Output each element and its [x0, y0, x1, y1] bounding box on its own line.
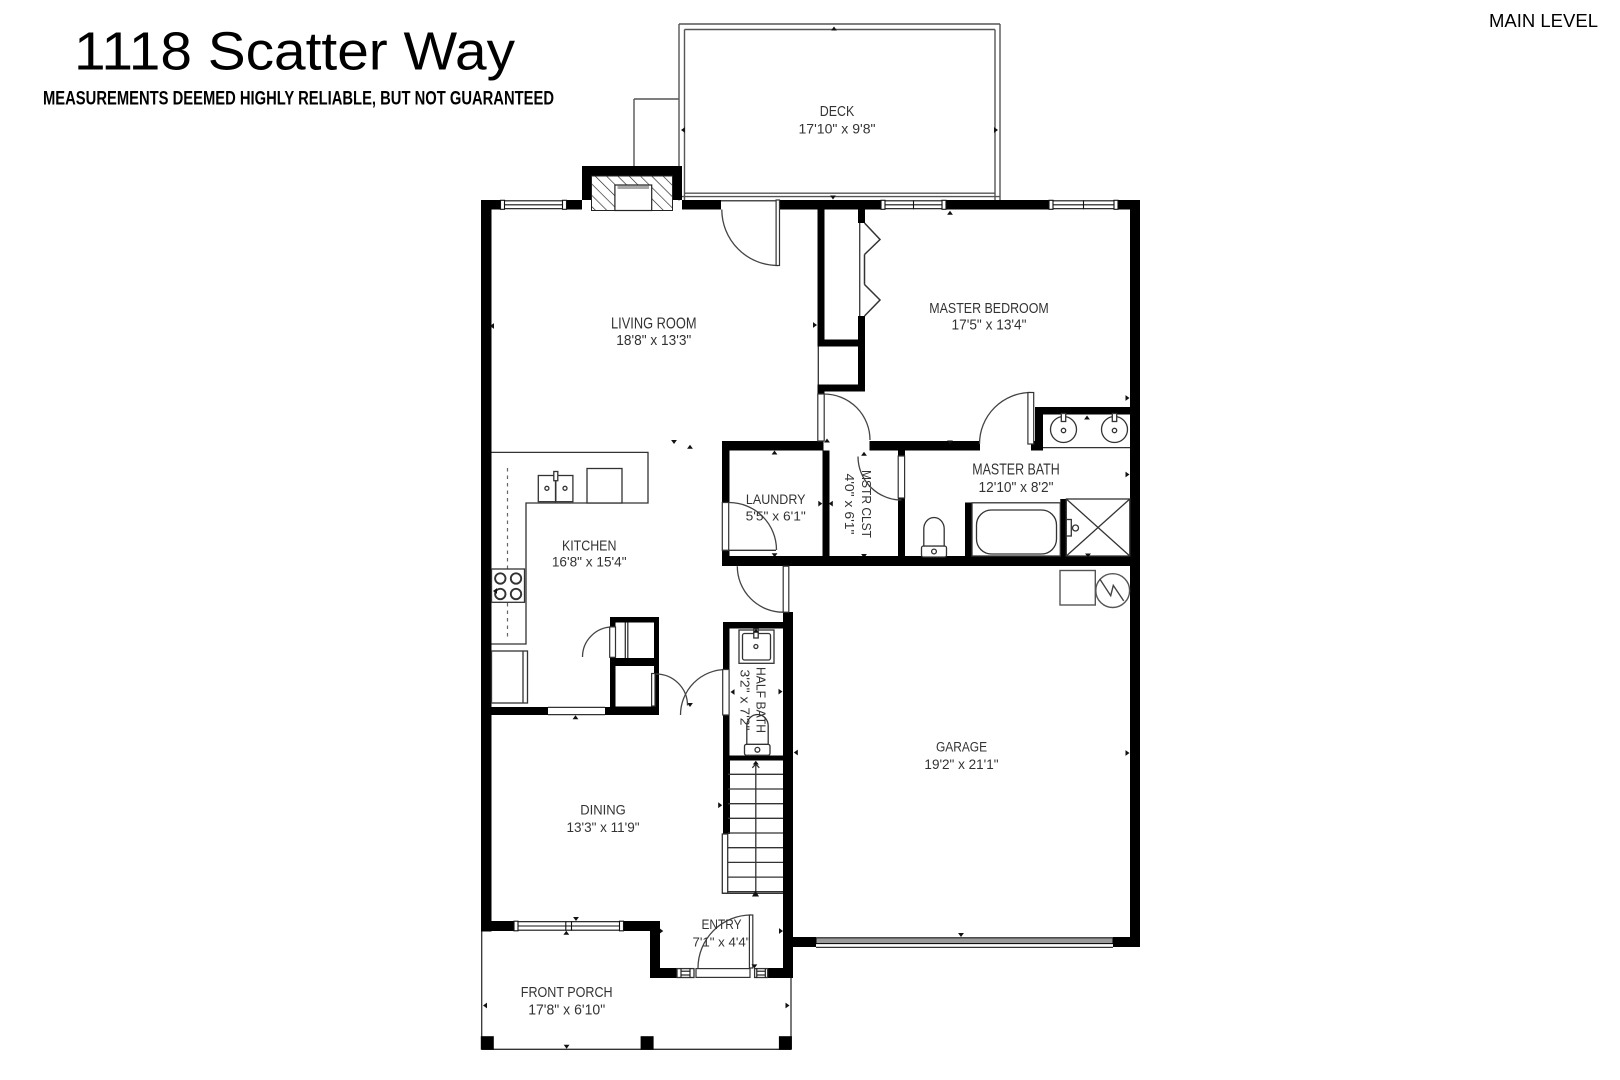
svg-text:MEASUREMENTS DEEMED HIGHLY REL: MEASUREMENTS DEEMED HIGHLY RELIABLE, BUT…: [43, 89, 554, 110]
svg-text:19'2" x 21'1": 19'2" x 21'1": [924, 757, 998, 772]
svg-text:17'5" x 13'4": 17'5" x 13'4": [952, 317, 1027, 333]
svg-text:MSTR CLST: MSTR CLST: [859, 470, 874, 538]
svg-text:GARAGE: GARAGE: [936, 740, 987, 755]
svg-text:3'2" x 7'2": 3'2" x 7'2": [738, 670, 752, 731]
svg-text:7'1" x 4'4": 7'1" x 4'4": [693, 935, 751, 950]
svg-text:17'10" x 9'8": 17'10" x 9'8": [799, 122, 876, 137]
svg-text:DINING: DINING: [580, 802, 626, 818]
svg-text:LAUNDRY: LAUNDRY: [746, 492, 806, 508]
svg-text:ENTRY: ENTRY: [702, 917, 742, 932]
svg-text:DECK: DECK: [820, 103, 855, 120]
svg-text:18'8" x 13'3": 18'8" x 13'3": [616, 333, 691, 349]
svg-text:4'0" x 6'1": 4'0" x 6'1": [842, 474, 856, 535]
svg-text:5'5" x 6'1": 5'5" x 6'1": [746, 509, 806, 523]
svg-text:MAIN LEVEL: MAIN LEVEL: [1489, 10, 1598, 31]
svg-text:KITCHEN: KITCHEN: [562, 538, 617, 555]
svg-text:FRONT PORCH: FRONT PORCH: [521, 984, 613, 1001]
svg-text:MASTER BATH: MASTER BATH: [972, 462, 1060, 479]
svg-text:1118 Scatter Way: 1118 Scatter Way: [74, 22, 515, 82]
svg-text:12'10" x 8'2": 12'10" x 8'2": [979, 480, 1054, 496]
svg-text:16'8" x 15'4": 16'8" x 15'4": [552, 553, 627, 569]
svg-text:HALF BATH: HALF BATH: [754, 667, 769, 733]
svg-text:13'3" x 11'9": 13'3" x 11'9": [567, 820, 640, 835]
svg-text:MASTER BEDROOM: MASTER BEDROOM: [929, 301, 1049, 317]
svg-text:LIVING ROOM: LIVING ROOM: [611, 316, 697, 333]
svg-text:17'8" x 6'10": 17'8" x 6'10": [528, 1003, 605, 1019]
